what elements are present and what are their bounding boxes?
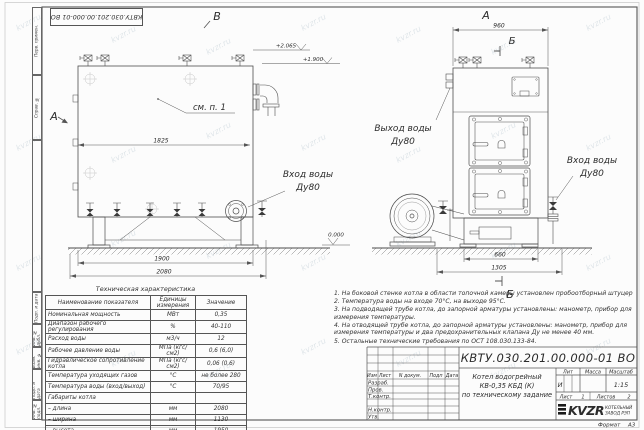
row-prov: Пров. bbox=[368, 388, 383, 394]
spec-cell: МПа (кгс/см2) bbox=[151, 344, 196, 357]
spec-header-row: Наименование показателя Единицы измерени… bbox=[46, 296, 247, 310]
logo-text: KVZR bbox=[568, 403, 604, 418]
spec-cell: % bbox=[151, 321, 196, 334]
spec-header-value: Значение bbox=[196, 296, 247, 310]
spec-cell: мм bbox=[151, 403, 196, 414]
spec-cell: Номинальная мощность bbox=[46, 310, 151, 321]
spec-cell: Расход воды bbox=[46, 333, 151, 344]
control-panel bbox=[512, 77, 539, 96]
format-label: Формат bbox=[598, 423, 621, 429]
front-view-dimensions bbox=[436, 27, 573, 286]
dim-side-base: 1900 bbox=[154, 256, 169, 263]
boiler-base bbox=[460, 218, 538, 247]
spec-cell: Гидравлическое сопротивление котла bbox=[46, 357, 151, 370]
spec-cell: 1130 bbox=[196, 414, 247, 425]
spec-row: – высотамм1950 bbox=[46, 425, 247, 430]
margin-cell-inv-dubl: Инв. № дубл. bbox=[32, 324, 42, 347]
spec-row: Температура уходящих газов°Сне более 280 bbox=[46, 370, 247, 381]
top-valves bbox=[80, 55, 244, 66]
margin-cell-inv-podl: Инв. № подл. bbox=[32, 400, 42, 420]
front-inlet-label-line1: Вход воды bbox=[567, 156, 617, 166]
lower-door bbox=[469, 168, 530, 215]
lit-header: Лит bbox=[562, 370, 574, 376]
spec-row: Рабочее давление водыМПа (кгс/см2)0,6 (6… bbox=[46, 344, 247, 357]
spec-cell: Рабочее давление воды bbox=[46, 344, 151, 357]
spec-cell: 12 bbox=[196, 333, 247, 344]
supports bbox=[88, 217, 258, 248]
row-utv: Утв. bbox=[368, 415, 379, 421]
spec-cell: Габариты котла bbox=[46, 392, 151, 403]
spec-cell bbox=[196, 392, 247, 403]
front-view bbox=[372, 57, 592, 255]
row-tkontr: Т.контр. bbox=[368, 394, 391, 400]
technical-notes: 1. На боковой стенке котла в области топ… bbox=[334, 290, 638, 346]
doc-designation: КВТУ.030.201.00.000-01 ВО bbox=[461, 351, 636, 365]
front-left-valve bbox=[438, 201, 453, 214]
outlet-flange bbox=[446, 74, 453, 88]
spec-cell: МВт bbox=[151, 310, 196, 321]
spec-cell: °С bbox=[151, 370, 196, 381]
spec-row: Номинальная мощностьМВт0,35 bbox=[46, 310, 247, 321]
elevation-zero: 0.000 bbox=[328, 233, 344, 239]
lit-value: И bbox=[558, 381, 563, 389]
inlet-flange bbox=[226, 201, 247, 222]
spec-cell: Температура воды (вход/выход) bbox=[46, 381, 151, 392]
spec-cell: 2080 bbox=[196, 403, 247, 414]
spec-cell: мм bbox=[151, 414, 196, 425]
spec-cell: – высота bbox=[46, 425, 151, 430]
dim-side-width: 1825 bbox=[153, 138, 168, 145]
spec-cell bbox=[151, 392, 196, 403]
col-podp: Подп bbox=[430, 373, 443, 379]
side-view bbox=[68, 55, 330, 255]
spec-row: – длинамм2080 bbox=[46, 403, 247, 414]
front-right-valve bbox=[548, 197, 558, 244]
spec-cell: мм bbox=[151, 425, 196, 430]
front-view-label: А bbox=[481, 9, 490, 22]
side-view-label: В bbox=[213, 10, 221, 23]
col-izm: Изм bbox=[367, 373, 377, 379]
spec-cell: – ширина bbox=[46, 414, 151, 425]
doc-name-line1: Котел водогрейный bbox=[472, 373, 542, 381]
dim-side-total: 2080 bbox=[156, 269, 171, 276]
drain-valves bbox=[86, 201, 267, 217]
list-label: Лист bbox=[559, 395, 574, 401]
front-outlet-label-line1: Выход воды bbox=[374, 124, 431, 134]
margin-cell-podp-data-1: Подп. и дата bbox=[32, 292, 42, 324]
upper-door bbox=[469, 116, 530, 166]
spec-cell: м3/ч bbox=[151, 333, 196, 344]
dim-front-width: 960 bbox=[493, 23, 505, 30]
massa-header: Масса bbox=[585, 370, 601, 376]
spec-cell: не более 280 bbox=[196, 370, 247, 381]
spec-cell: 0,6 (6,0) bbox=[196, 344, 247, 357]
list-value: 1 bbox=[581, 395, 584, 401]
front-inlet-label-line2: Ду80 bbox=[579, 169, 604, 179]
spec-cell: 70/95 bbox=[196, 381, 247, 392]
spec-table: Наименование показателя Единицы измерени… bbox=[45, 295, 247, 430]
margin-cell-spacer bbox=[32, 140, 42, 292]
spec-table-title: Техническая характеристика bbox=[45, 285, 246, 293]
logo-sub1: КОТЕЛЬНЫЙ bbox=[605, 405, 633, 410]
elevation-2: +1.900 bbox=[303, 57, 324, 63]
spec-header-name: Наименование показателя bbox=[46, 296, 151, 310]
spec-cell: 1950 bbox=[196, 425, 247, 430]
spec-row: – ширинамм1130 bbox=[46, 414, 247, 425]
note-item: 2. Температура воды на входе 70°С, на вы… bbox=[334, 298, 638, 306]
outlet-elbow bbox=[253, 84, 279, 116]
front-outlet-label-line2: Ду80 bbox=[390, 137, 415, 147]
doc-name-line3: по техническому задание bbox=[462, 391, 552, 399]
spec-cell: 0,06 (0,6) bbox=[196, 357, 247, 370]
spec-cell: Диапазон рабочего регулирования bbox=[46, 321, 151, 334]
margin-cell-podp-data-2: Подп. и дата bbox=[32, 369, 42, 400]
spec-row: Габариты котла bbox=[46, 392, 247, 403]
dim-front-total: 1305 bbox=[491, 265, 506, 272]
format-value: А3 bbox=[627, 423, 636, 429]
margin-cell-perv-primen: Перв. примен. bbox=[32, 7, 42, 75]
note-item: 3. На подводящей трубе котла, до запорно… bbox=[334, 306, 638, 321]
spec-row: Температура воды (вход/выход)°С70/95 bbox=[46, 381, 247, 392]
elevation-1: +2.065 bbox=[276, 44, 297, 50]
margin-cell-sprav-no: Справ. № bbox=[32, 75, 42, 140]
col-ndoc: N докум. bbox=[399, 373, 421, 379]
note-item: 4. На отводящей трубе котла, до запорной… bbox=[334, 322, 638, 337]
spec-cell: °С bbox=[151, 381, 196, 392]
spec-cell: 40-110 bbox=[196, 321, 247, 334]
listov-value: 2 bbox=[627, 395, 630, 401]
side-inlet-label-line1: Вход воды bbox=[283, 170, 333, 180]
row-razrab: Разраб. bbox=[368, 381, 389, 387]
masshtab-header: Масштаб bbox=[609, 370, 633, 376]
spec-cell: 0,35 bbox=[196, 310, 247, 321]
side-inlet-label-line2: Ду80 bbox=[295, 183, 320, 193]
spec-header-units: Единицы измерения bbox=[151, 296, 196, 310]
spec-cell: Температура уходящих газов bbox=[46, 370, 151, 381]
spec-row: Расход водым3/ч12 bbox=[46, 333, 247, 344]
spec-cell: МПа (кгс/см2) bbox=[151, 357, 196, 370]
col-list: Лист bbox=[378, 373, 391, 379]
dim-front-base: 660 bbox=[494, 252, 506, 259]
doc-name-line2: КВ-0,35 КБД (К) bbox=[480, 382, 535, 390]
spec-cell: – длина bbox=[46, 403, 151, 414]
masshtab-value: 1:15 bbox=[614, 381, 629, 389]
note-item: 5. Остальные технические требования по О… bbox=[334, 338, 638, 346]
callout-see-item: см. п. 1 bbox=[193, 103, 226, 113]
note-item: 1. На боковой стенке котла в области топ… bbox=[334, 290, 638, 298]
spec-row: Гидравлическое сопротивление котлаМПа (к… bbox=[46, 357, 247, 370]
spec-row: Диапазон рабочего регулирования%40-110 bbox=[46, 321, 247, 334]
top-stamp-designation: КВТУ.030.201.00.000-01 ВО bbox=[50, 8, 143, 26]
listov-label: Листов bbox=[596, 395, 616, 401]
logo-sub2: ЗАВОД РЭП bbox=[605, 411, 631, 416]
margin-cell-vzam-inv: Взам. инв. № bbox=[32, 347, 42, 369]
section-label-a: А bbox=[49, 110, 58, 123]
section-marker-top: Б bbox=[509, 36, 516, 47]
row-nkontr: Н.контр. bbox=[368, 408, 392, 414]
col-data: Дата bbox=[445, 373, 458, 379]
drawing-sheet: kvzr.rukvzr.rukvzr.rukvzr.rukvzr.rukvzr.… bbox=[0, 0, 644, 430]
